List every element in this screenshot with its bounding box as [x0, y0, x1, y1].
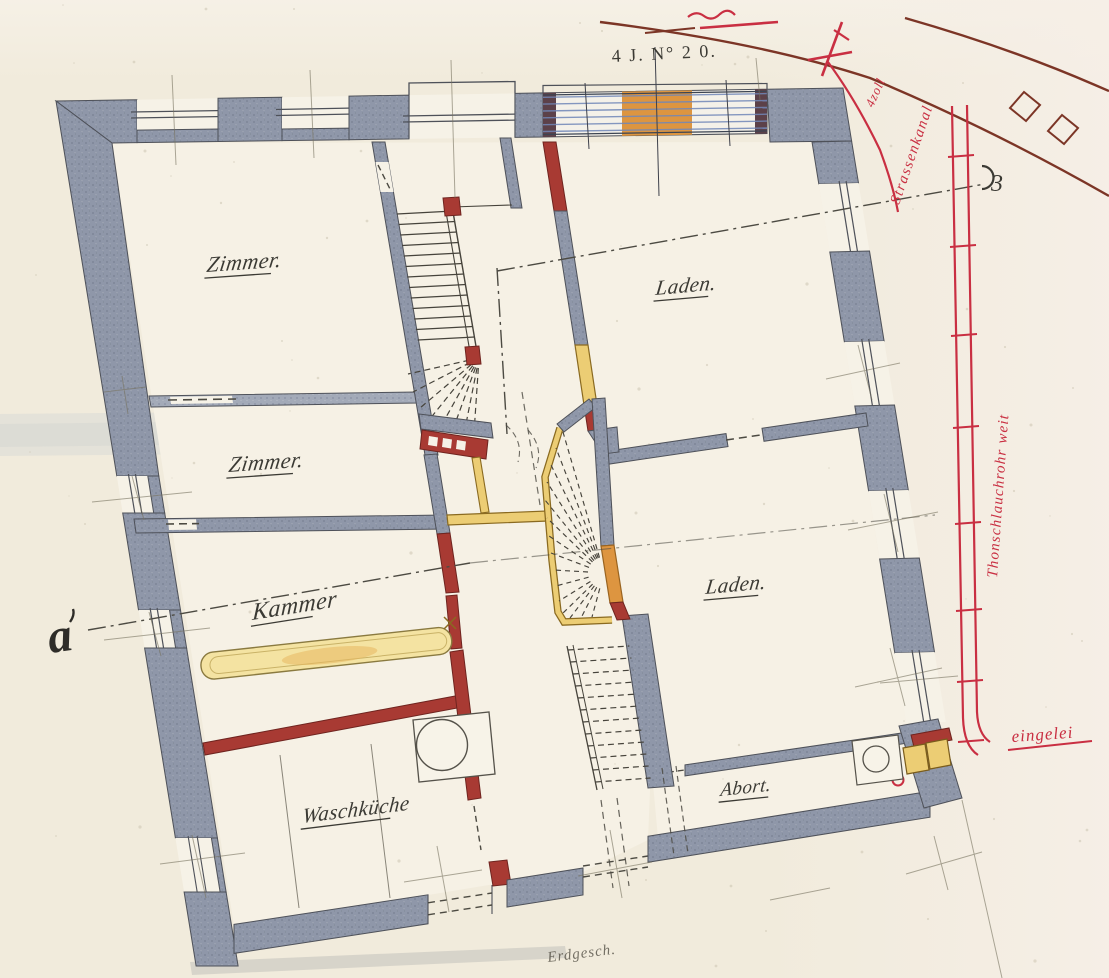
svg-text:3: 3	[990, 171, 1003, 197]
